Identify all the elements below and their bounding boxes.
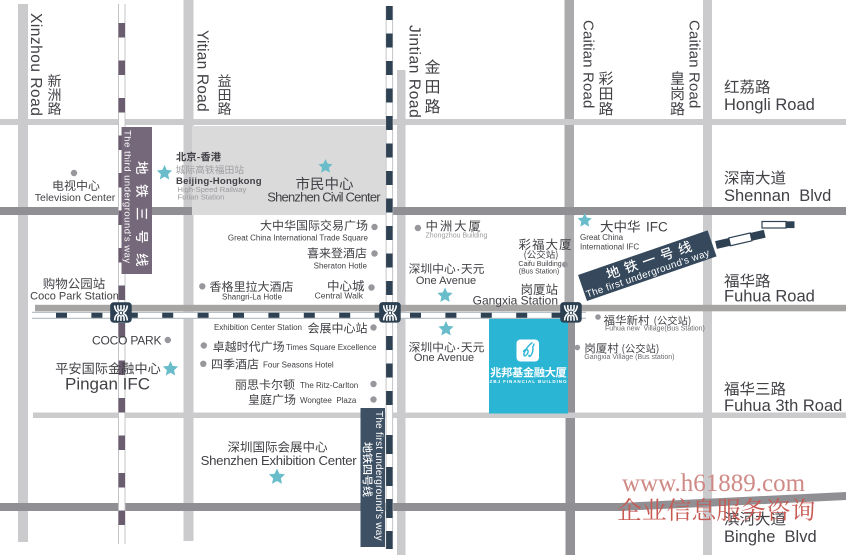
svg-text:Jintian Road: Jintian Road [406, 25, 423, 118]
svg-text:Fuhua 3th Road: Fuhua 3th Road [724, 397, 842, 415]
svg-text:The third underground's way: The third underground's way [122, 130, 133, 264]
svg-text:International IFC: International IFC [580, 243, 639, 252]
svg-text:One Avenue: One Avenue [416, 275, 476, 287]
svg-text:Coco Park Station: Coco Park Station [30, 290, 119, 302]
svg-text:Yitian Road: Yitian Road [194, 30, 211, 112]
svg-text:Shennan Blvd: Shennan Blvd [724, 187, 831, 205]
svg-text:Gangxia Station: Gangxia Station [473, 294, 558, 308]
svg-text:ZBJ FINANCIAL BUILDING: ZBJ FINANCIAL BUILDING [490, 379, 568, 384]
svg-text:Xinzhou Road: Xinzhou Road [27, 13, 44, 116]
svg-text:Caitian Road: Caitian Road [686, 20, 703, 109]
svg-text:Wongtee Plaza: Wongtee Plaza [300, 396, 357, 405]
svg-text:IFC: IFC [646, 220, 668, 235]
svg-text:Pingan IFC: Pingan IFC [65, 375, 150, 394]
svg-text:www.h61889.com: www.h61889.com [622, 470, 806, 497]
svg-text:COCO PARK: COCO PARK [92, 333, 162, 347]
svg-text:Gangxia Village (Bus station): Gangxia Village (Bus station) [584, 354, 674, 361]
svg-text:Shenzhen Civil Center: Shenzhen Civil Center [267, 190, 381, 205]
svg-text:Exhibition Center Station: Exhibition Center Station [214, 323, 302, 332]
svg-text:The first underground's way: The first underground's way [373, 411, 384, 541]
svg-text:Shangri-La Hotle: Shangri-La Hotle [222, 293, 283, 302]
svg-text:Futian Station: Futian Station [178, 193, 225, 202]
svg-text:Shenzhen Exhibition Center: Shenzhen Exhibition Center [201, 453, 358, 468]
svg-text:(Bus Station): (Bus Station) [519, 269, 559, 276]
svg-text:Great China: Great China [580, 233, 624, 242]
svg-text:Hongli Road: Hongli Road [724, 96, 815, 114]
svg-text:Fuhua Road: Fuhua Road [724, 288, 815, 306]
svg-text:Television Center: Television Center [35, 192, 116, 204]
svg-text:Four Seasons Hotel: Four Seasons Hotel [263, 361, 334, 370]
svg-text:One Avenue: One Avenue [414, 352, 474, 364]
svg-text:Caitian Road: Caitian Road [580, 20, 597, 109]
svg-text:Times Square Excellence: Times Square Excellence [286, 343, 377, 352]
svg-text:Great China International Trad: Great China International Trade Square [228, 234, 369, 243]
svg-text:Central Walk: Central Walk [315, 291, 364, 301]
svg-text:Fuhua new Village(Bus Station: Fuhua new Village(Bus Station) [605, 326, 705, 333]
svg-text:Caifu Building: Caifu Building [518, 261, 561, 268]
svg-text:The Ritz-Carlton: The Ritz-Carlton [300, 381, 358, 390]
svg-text:Zhongzhou Building: Zhongzhou Building [426, 233, 488, 240]
svg-text:Binghe Blvd: Binghe Blvd [724, 528, 817, 546]
svg-text:Sheraton Hotle: Sheraton Hotle [314, 262, 368, 271]
